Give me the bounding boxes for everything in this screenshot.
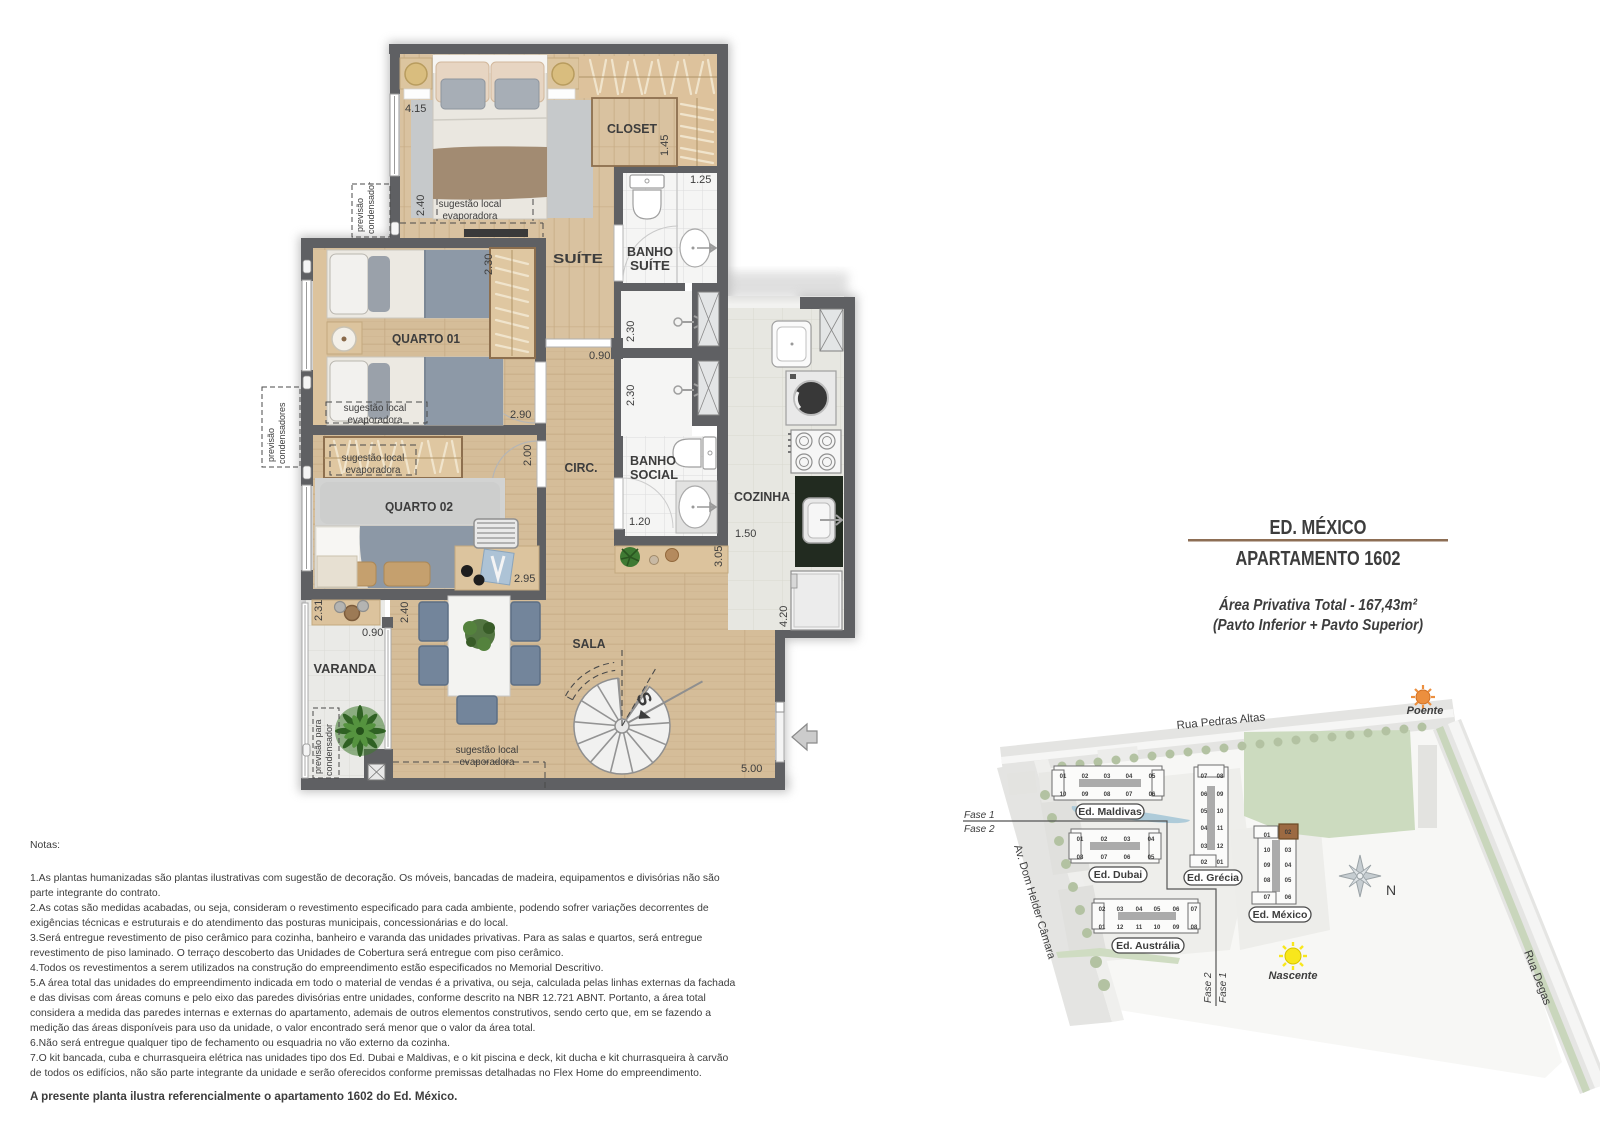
svg-text:CLOSET: CLOSET [607, 121, 657, 136]
svg-text:Notas:: Notas: [30, 840, 60, 851]
svg-text:09: 09 [1082, 792, 1089, 798]
svg-text:08: 08 [1264, 878, 1271, 884]
svg-text:previsão: previsão [266, 428, 276, 462]
svg-text:1.As plantas humanizadas são p: 1.As plantas humanizadas são plantas ilu… [30, 873, 720, 884]
svg-text:3.Será entregue revestimento d: 3.Será entregue revestimento de piso cer… [30, 933, 703, 944]
svg-text:07: 07 [1101, 855, 1108, 861]
svg-text:considera a medida das paredes: considera a medida das paredes internas … [30, 1008, 711, 1019]
svg-text:A presente planta ilustra refe: A presente planta ilustra referencialmen… [30, 1090, 457, 1103]
svg-text:Ed. México: Ed. México [1253, 909, 1308, 921]
svg-text:medição das áreas disponíveis: medição das áreas disponíveis para uso d… [30, 1023, 535, 1034]
svg-text:06: 06 [1149, 792, 1156, 798]
svg-text:2.95: 2.95 [514, 573, 535, 585]
svg-text:QUARTO 01: QUARTO 01 [392, 331, 460, 346]
svg-text:08: 08 [1077, 855, 1084, 861]
svg-text:2.90: 2.90 [510, 409, 531, 421]
svg-text:4.Todos os revestimentos a ser: 4.Todos os revestimentos a serem utiliza… [30, 963, 604, 974]
svg-text:09: 09 [1173, 925, 1180, 931]
svg-text:e das divisas com áreas comuns: e das divisas com áreas comuns e pelo ei… [30, 993, 706, 1004]
svg-text:Fase 1: Fase 1 [964, 810, 995, 821]
svg-text:sugestão local: sugestão local [344, 403, 407, 414]
svg-text:09: 09 [1217, 792, 1224, 798]
svg-text:2.30: 2.30 [483, 254, 495, 275]
svg-text:12: 12 [1117, 925, 1124, 931]
svg-text:condensador: condensador [324, 724, 334, 776]
svg-text:Ed. Maldivas: Ed. Maldivas [1078, 806, 1142, 818]
svg-text:03: 03 [1117, 907, 1124, 913]
svg-text:01: 01 [1217, 860, 1224, 866]
svg-text:5.00: 5.00 [741, 763, 762, 775]
svg-text:revestimento de piso laminado.: revestimento de piso laminado. O terraço… [30, 948, 564, 959]
svg-text:sugestão local: sugestão local [342, 453, 405, 464]
svg-text:03: 03 [1201, 844, 1208, 850]
svg-text:07: 07 [1126, 792, 1133, 798]
svg-text:07: 07 [1191, 907, 1198, 913]
svg-text:parte integrante do contrato.: parte integrante do contrato. [30, 888, 161, 899]
svg-text:4.20: 4.20 [778, 606, 790, 627]
svg-text:SUÍTE: SUÍTE [630, 258, 670, 273]
svg-text:12: 12 [1217, 844, 1224, 850]
svg-text:Ed. Austrália: Ed. Austrália [1116, 940, 1180, 952]
svg-text:10: 10 [1217, 809, 1224, 815]
svg-text:03: 03 [1124, 837, 1131, 843]
svg-text:03: 03 [1104, 774, 1111, 780]
svg-text:06: 06 [1285, 895, 1292, 901]
svg-text:2.30: 2.30 [625, 385, 637, 406]
svg-text:sugestão local: sugestão local [456, 745, 519, 756]
svg-text:BANHO: BANHO [630, 453, 676, 468]
svg-text:02: 02 [1201, 860, 1208, 866]
svg-text:BANHO: BANHO [627, 244, 673, 259]
svg-text:06: 06 [1201, 792, 1208, 798]
svg-text:02: 02 [1082, 774, 1089, 780]
svg-text:5.A área total das unidades do: 5.A área total das unidades do empreendi… [30, 978, 736, 989]
svg-text:Fase 2: Fase 2 [1203, 972, 1214, 1003]
svg-text:10: 10 [1264, 848, 1271, 854]
svg-text:05: 05 [1285, 878, 1292, 884]
svg-text:04: 04 [1148, 837, 1155, 843]
svg-text:06: 06 [1124, 855, 1131, 861]
svg-text:1.20: 1.20 [629, 516, 650, 528]
svg-text:08: 08 [1104, 792, 1111, 798]
svg-text:0.90: 0.90 [589, 350, 610, 362]
svg-text:01: 01 [1099, 925, 1106, 931]
svg-text:01: 01 [1060, 774, 1067, 780]
svg-text:03: 03 [1285, 848, 1292, 854]
svg-text:Fase 2: Fase 2 [964, 824, 995, 835]
svg-text:09: 09 [1264, 863, 1271, 869]
svg-text:10: 10 [1060, 792, 1067, 798]
svg-text:07: 07 [1201, 774, 1208, 780]
svg-text:11: 11 [1136, 925, 1143, 931]
svg-text:previsão: previsão [355, 198, 365, 232]
svg-text:Fase 1: Fase 1 [1218, 972, 1229, 1003]
svg-text:Nascente: Nascente [1269, 970, 1318, 982]
svg-text:05: 05 [1148, 855, 1155, 861]
svg-text:evaporadora: evaporadora [345, 465, 401, 476]
svg-text:previsão para: previsão para [313, 719, 323, 774]
svg-text:VARANDA: VARANDA [314, 661, 378, 676]
svg-text:10: 10 [1154, 925, 1161, 931]
svg-text:3.05: 3.05 [713, 546, 725, 567]
svg-text:02: 02 [1099, 907, 1106, 913]
svg-text:Poente: Poente [1407, 705, 1444, 717]
svg-text:1.50: 1.50 [735, 528, 756, 540]
svg-text:condensador: condensador [366, 182, 376, 234]
svg-text:condensadores: condensadores [277, 402, 287, 464]
svg-text:01: 01 [1077, 837, 1084, 843]
svg-text:1.45: 1.45 [659, 135, 671, 156]
svg-text:02: 02 [1101, 837, 1108, 843]
svg-text:COZINHA: COZINHA [734, 489, 791, 504]
svg-text:05: 05 [1149, 774, 1156, 780]
svg-text:2.31: 2.31 [313, 600, 325, 621]
svg-text:04: 04 [1136, 907, 1143, 913]
svg-text:(Pavto Inferior + Pavto Superi: (Pavto Inferior + Pavto Superior) [1213, 617, 1423, 634]
svg-text:7.O kit bancada, cuba e churra: 7.O kit bancada, cuba e churrasqueira el… [30, 1053, 729, 1064]
svg-text:0.90: 0.90 [362, 627, 383, 639]
svg-text:6.Não será entregue qualquer t: 6.Não será entregue qualquer tipo de fec… [30, 1038, 450, 1049]
svg-text:evaporadora: evaporadora [347, 415, 403, 426]
svg-text:APARTAMENTO 1602: APARTAMENTO 1602 [1236, 548, 1401, 570]
svg-text:SUÍTE: SUÍTE [553, 251, 603, 266]
svg-text:1.25: 1.25 [690, 174, 711, 186]
svg-text:CIRC.: CIRC. [565, 460, 598, 475]
svg-text:01: 01 [1264, 833, 1271, 839]
svg-text:SOCIAL: SOCIAL [630, 467, 678, 482]
svg-text:05: 05 [1201, 809, 1208, 815]
svg-text:de todos os edifícios, não são: de todos os edifícios, não são parte int… [30, 1068, 702, 1079]
svg-text:06: 06 [1173, 907, 1180, 913]
svg-text:4.15: 4.15 [405, 103, 426, 115]
svg-text:evaporadora: evaporadora [459, 757, 515, 768]
svg-text:2.40: 2.40 [415, 195, 427, 216]
svg-text:Ed. Grécia: Ed. Grécia [1187, 872, 1239, 884]
svg-text:2.40: 2.40 [399, 602, 411, 623]
svg-text:2.As cotas são medidas acabada: 2.As cotas são medidas acabadas, ou seja… [30, 903, 709, 914]
svg-text:Área Privativa Total - 167,43m: Área Privativa Total - 167,43m² [1218, 595, 1417, 614]
svg-text:02: 02 [1285, 830, 1292, 836]
svg-text:SALA: SALA [573, 636, 607, 651]
svg-text:2.30: 2.30 [625, 321, 637, 342]
svg-text:07: 07 [1264, 895, 1271, 901]
svg-text:04: 04 [1201, 826, 1208, 832]
svg-text:N: N [1386, 882, 1396, 898]
svg-text:QUARTO 02: QUARTO 02 [385, 499, 453, 514]
svg-text:08: 08 [1217, 774, 1224, 780]
svg-text:2.00: 2.00 [522, 445, 534, 466]
svg-text:evaporadora: evaporadora [442, 211, 498, 222]
svg-text:exigências técnicas e estrutur: exigências técnicas e estruturais e do a… [30, 918, 508, 929]
svg-text:04: 04 [1126, 774, 1133, 780]
svg-text:05: 05 [1154, 907, 1161, 913]
svg-text:sugestão local: sugestão local [439, 199, 502, 210]
svg-text:08: 08 [1191, 925, 1198, 931]
svg-text:ED. MÉXICO: ED. MÉXICO [1270, 516, 1367, 539]
svg-text:04: 04 [1285, 863, 1292, 869]
svg-text:11: 11 [1217, 826, 1224, 832]
svg-text:Ed. Dubai: Ed. Dubai [1094, 869, 1143, 881]
